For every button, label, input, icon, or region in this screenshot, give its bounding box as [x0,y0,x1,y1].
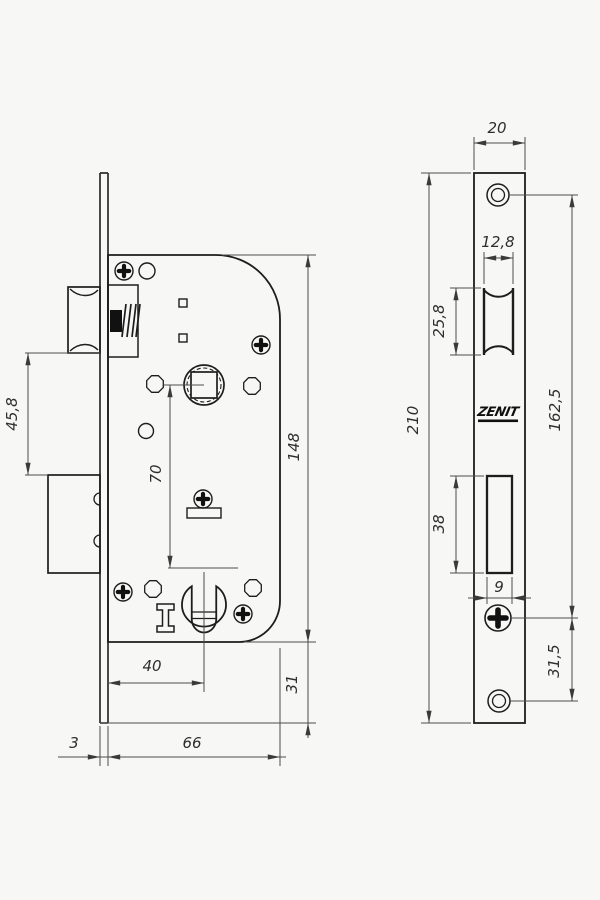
square-hole [179,299,187,307]
octagon-hole [145,581,162,598]
latch-bolt-head [68,287,100,353]
drawing-canvas: 45,8 70 148 31 40 [0,0,600,900]
dim-210: 210 [404,173,471,723]
dim-12-8: 12,8 [481,233,514,284]
side-view: 45,8 70 148 31 40 [3,173,316,766]
deadbolt-opening [487,476,512,573]
dim-label: 40 [142,657,161,675]
screw-icon [115,262,133,280]
brand-logo: ZENIT [475,405,521,422]
dim-label: 70 [147,464,165,483]
dim-3-66: 3 66 [58,648,286,766]
dim-label: 210 [404,406,422,435]
dim-label: 66 [182,734,201,752]
latch-opening [484,288,513,355]
dim-label: 162,5 [546,389,564,432]
octagon-hole [147,376,164,393]
latch-spring-housing [108,285,140,357]
faceplate-edge [100,173,108,723]
countersunk-hole [487,184,509,206]
cylinder-clamp [157,604,174,632]
lock-technical-drawing: 45,8 70 148 31 40 [0,0,600,900]
front-view: ZENIT 20 12,8 [404,119,578,723]
square-hole [179,334,187,342]
countersunk-hole [488,690,510,712]
dim-38: 38 [430,476,484,573]
dim-162-5: 162,5 [546,195,572,618]
dim-label: 9 [494,578,504,596]
round-hole [139,263,155,279]
dim-label: 148 [285,433,303,462]
round-hole [139,424,154,439]
dim-148: 148 [222,255,316,642]
logo-text: ZENIT [475,405,521,420]
dim-label: 31,5 [545,644,563,677]
dim-31-5: 31,5 [545,618,572,701]
screw-icon [234,605,252,623]
dim-label: 38 [430,514,448,533]
screw-icon [252,336,270,354]
logo-underline [478,420,518,423]
faceplate-front-outline [474,173,525,723]
dim-label: 20 [487,119,506,137]
dim-45-8: 45,8 [3,353,100,475]
latch-slider [110,310,122,332]
phillips-screw-icon [485,605,511,631]
dim-20: 20 [474,119,525,170]
dim-70: 70 [147,385,238,568]
dim-label: 25,8 [430,304,448,337]
octagon-hole [245,580,262,597]
dim-label: 31 [283,674,301,693]
deadbolt [48,475,100,573]
dim-label: 12,8 [481,233,514,251]
octagon-hole [244,378,261,395]
dim-label: 45,8 [3,397,21,430]
adjuster-plate [187,508,221,518]
screw-icon [194,490,212,508]
screw-icon [114,583,132,601]
dim-9: 9 [468,577,531,604]
dim-label: 3 [69,734,79,752]
